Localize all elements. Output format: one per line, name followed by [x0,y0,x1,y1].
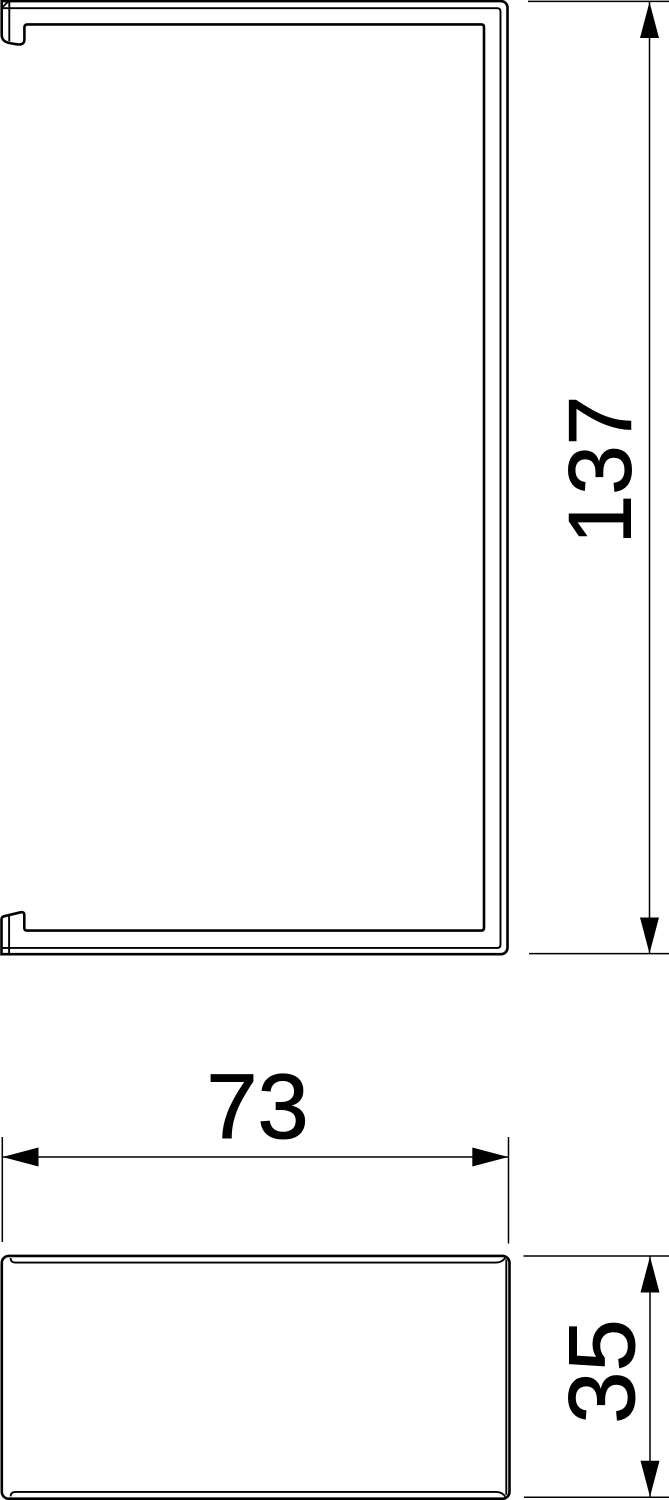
svg-text:137: 137 [549,396,649,545]
svg-text:35: 35 [549,1319,654,1424]
svg-text:73: 73 [206,1056,308,1158]
